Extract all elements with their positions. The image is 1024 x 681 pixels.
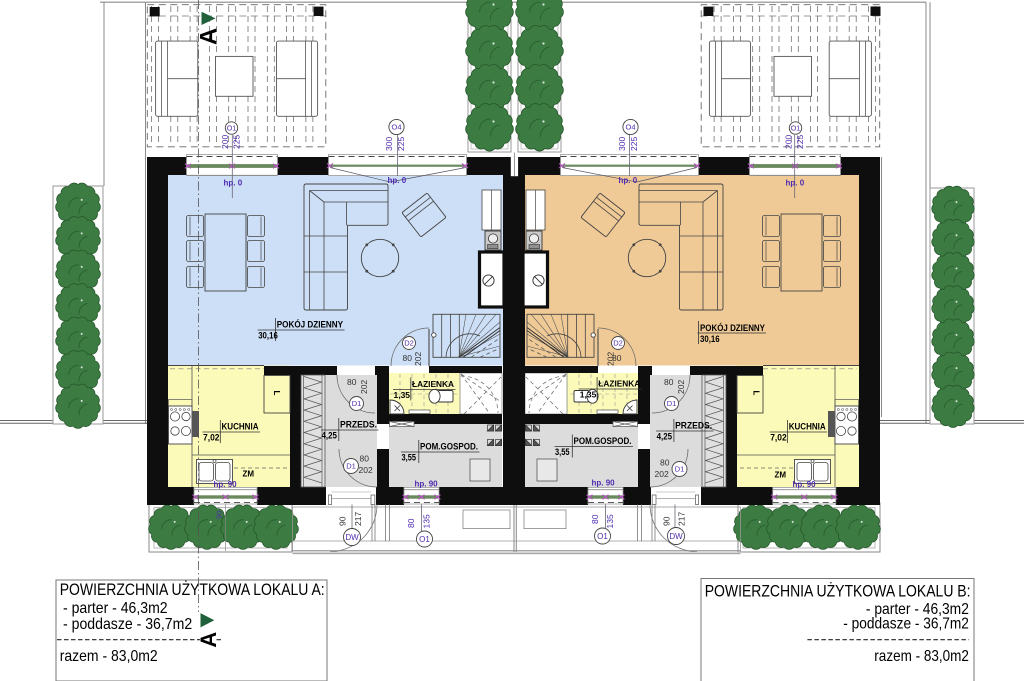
svg-text:KUCHNIA: KUCHNIA xyxy=(222,422,259,432)
svg-text:135: 135 xyxy=(422,514,432,528)
svg-text:80: 80 xyxy=(660,458,670,468)
svg-text:80: 80 xyxy=(406,518,416,528)
svg-text:225: 225 xyxy=(795,135,805,149)
svg-text:135: 135 xyxy=(605,514,615,528)
svg-text:O4: O4 xyxy=(625,123,635,132)
svg-text:A: A xyxy=(196,632,221,648)
svg-text:O1: O1 xyxy=(419,535,430,544)
svg-text:PRZEDS.: PRZEDS. xyxy=(675,421,712,431)
svg-text:30,16: 30,16 xyxy=(258,331,278,342)
svg-text:ZM: ZM xyxy=(775,471,787,480)
svg-text:O1: O1 xyxy=(227,124,237,133)
svg-text:- poddasze - 36,7m2: - poddasze - 36,7m2 xyxy=(843,616,969,633)
svg-text:80: 80 xyxy=(590,514,600,524)
svg-text:217: 217 xyxy=(353,512,363,526)
svg-text:D1: D1 xyxy=(346,462,356,471)
svg-text:hp. 90: hp. 90 xyxy=(592,479,616,488)
svg-text:225: 225 xyxy=(629,137,639,151)
svg-text:hp. 90: hp. 90 xyxy=(214,480,238,489)
svg-text:300: 300 xyxy=(384,137,394,151)
svg-text:hp. 90: hp. 90 xyxy=(793,480,817,489)
svg-text:D1: D1 xyxy=(352,399,362,408)
svg-text:hp. 0: hp. 0 xyxy=(786,179,805,188)
svg-text:POWIERZCHNIA UŻYTKOWA LOKALU A: POWIERZCHNIA UŻYTKOWA LOKALU A: xyxy=(60,580,325,599)
svg-text:L: L xyxy=(272,391,281,396)
svg-text:80: 80 xyxy=(403,353,413,363)
svg-text:O1: O1 xyxy=(597,532,608,541)
svg-text:200: 200 xyxy=(220,135,230,149)
svg-text:hp. 90: hp. 90 xyxy=(415,480,439,489)
svg-text:hp. 0: hp. 0 xyxy=(224,179,243,188)
svg-text:90: 90 xyxy=(662,516,672,526)
svg-text:POKÓJ DZIENNY: POKÓJ DZIENNY xyxy=(700,322,766,334)
svg-text:D1: D1 xyxy=(667,399,677,408)
svg-text:DW: DW xyxy=(345,533,359,542)
svg-text:DW: DW xyxy=(669,532,683,541)
svg-text:O1: O1 xyxy=(791,124,801,133)
svg-text:7,02: 7,02 xyxy=(203,433,220,443)
svg-text:KUCHNIA: KUCHNIA xyxy=(789,422,826,432)
svg-text:hp. 0: hp. 0 xyxy=(388,176,407,185)
svg-text:3,55: 3,55 xyxy=(402,453,417,463)
svg-text:300: 300 xyxy=(617,137,627,151)
svg-text:POM.GOSPOD.: POM.GOSPOD. xyxy=(420,442,478,452)
svg-text:POM.GOSPOD.: POM.GOSPOD. xyxy=(574,436,632,446)
svg-text:D2: D2 xyxy=(404,339,414,348)
svg-text:ŁAZIENKA: ŁAZIENKA xyxy=(412,379,454,389)
svg-text:razem - 83,0m2: razem - 83,0m2 xyxy=(60,648,158,665)
svg-text:30,16: 30,16 xyxy=(700,334,720,345)
svg-text:O4: O4 xyxy=(391,123,401,132)
svg-text:A: A xyxy=(196,28,223,45)
svg-text:80: 80 xyxy=(664,377,674,387)
svg-text:225: 225 xyxy=(232,135,242,149)
svg-text:80: 80 xyxy=(347,377,357,387)
svg-text:1,35: 1,35 xyxy=(580,390,597,400)
svg-text:90: 90 xyxy=(215,511,224,519)
svg-text:202: 202 xyxy=(413,352,423,366)
svg-text:L: L xyxy=(752,391,761,396)
svg-text:202: 202 xyxy=(655,469,669,479)
svg-text:200: 200 xyxy=(784,135,794,149)
svg-text:202: 202 xyxy=(676,380,686,394)
svg-text:202: 202 xyxy=(359,380,369,394)
svg-text:202: 202 xyxy=(359,465,373,475)
svg-text:3,55: 3,55 xyxy=(555,447,570,457)
svg-text:- parter - 46,3m2: - parter - 46,3m2 xyxy=(63,600,168,617)
svg-text:ŁAZIENKA: ŁAZIENKA xyxy=(598,379,640,389)
svg-text:hp. 0: hp. 0 xyxy=(619,176,638,185)
svg-text:- poddasze - 36,7m2: - poddasze - 36,7m2 xyxy=(63,616,192,633)
svg-text:D1: D1 xyxy=(675,465,685,474)
svg-text:PRZEDS.: PRZEDS. xyxy=(340,420,377,430)
svg-text:ZM: ZM xyxy=(243,470,255,479)
svg-text:90: 90 xyxy=(338,516,348,526)
svg-text:razem - 83,0m2: razem - 83,0m2 xyxy=(874,648,969,665)
svg-text:217: 217 xyxy=(677,512,687,526)
svg-text:202: 202 xyxy=(606,352,616,366)
svg-text:225: 225 xyxy=(396,137,406,151)
svg-text:4,25: 4,25 xyxy=(322,431,338,441)
svg-text:1,35: 1,35 xyxy=(394,390,411,400)
svg-text:D2: D2 xyxy=(613,339,623,348)
svg-text:4,25: 4,25 xyxy=(657,432,673,442)
svg-text:80: 80 xyxy=(360,454,370,464)
svg-text:POKÓJ DZIENNY: POKÓJ DZIENNY xyxy=(277,319,344,331)
svg-text:7,02: 7,02 xyxy=(770,433,787,443)
svg-text:POWIERZCHNIA UŻYTKOWA LOKALU B: POWIERZCHNIA UŻYTKOWA LOKALU B: xyxy=(705,581,971,600)
